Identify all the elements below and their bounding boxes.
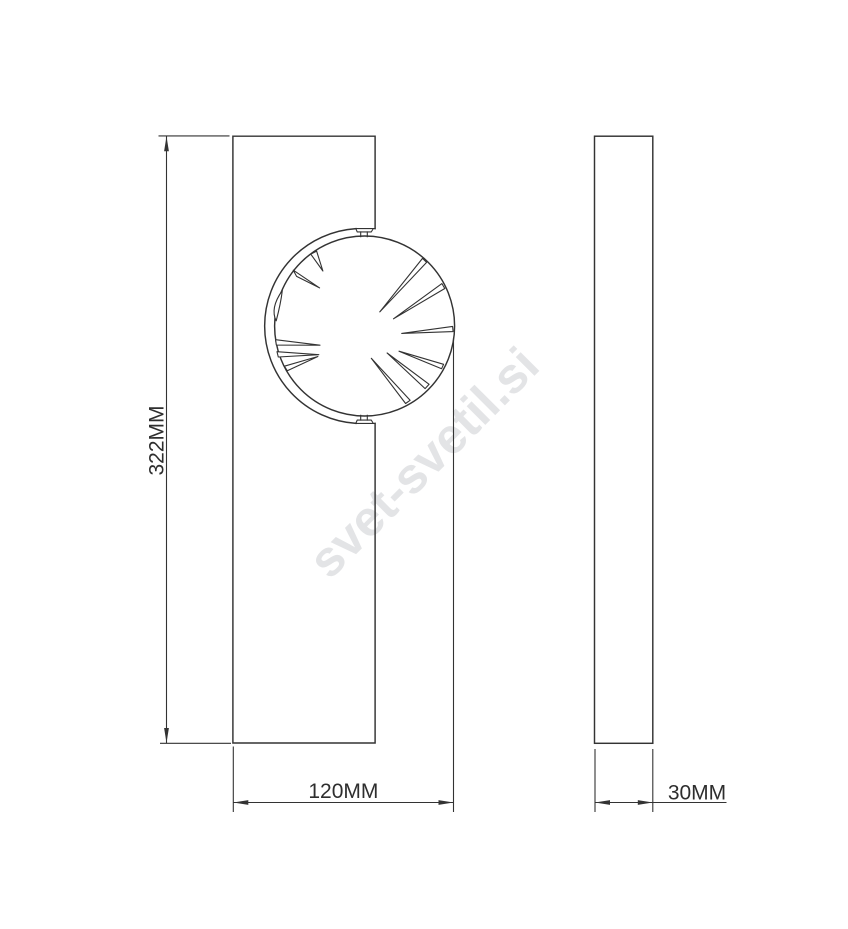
svg-text:322MM: 322MM	[145, 405, 168, 475]
svg-text:120MM: 120MM	[308, 780, 378, 803]
svg-text:30MM: 30MM	[668, 782, 726, 805]
